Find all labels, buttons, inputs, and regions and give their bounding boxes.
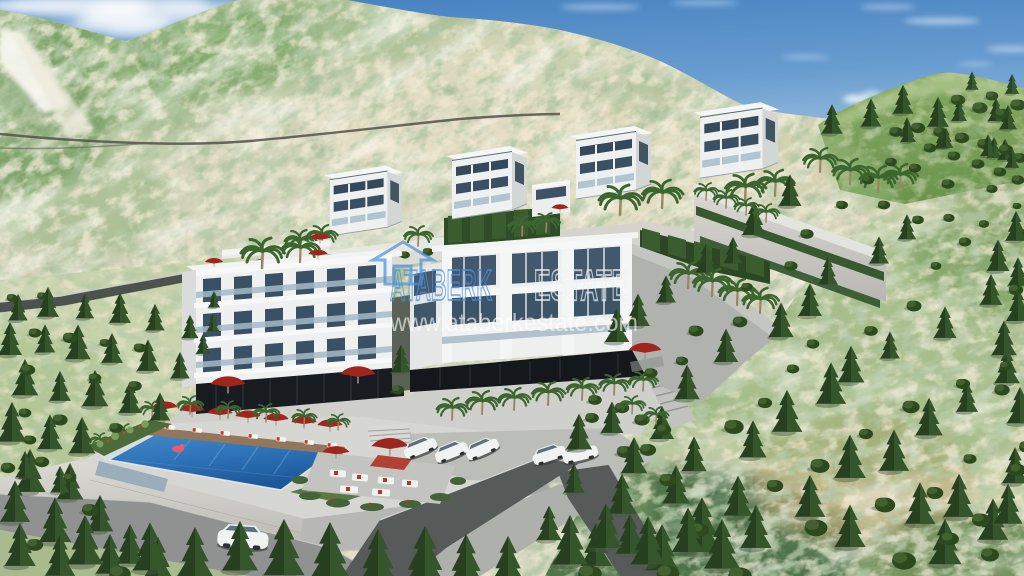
svg-text:www.ataberkestate.com: www.ataberkestate.com <box>389 309 638 337</box>
svg-text:ATABERK: ATABERK <box>390 261 492 310</box>
svg-text:ESTATE: ESTATE <box>534 261 628 310</box>
